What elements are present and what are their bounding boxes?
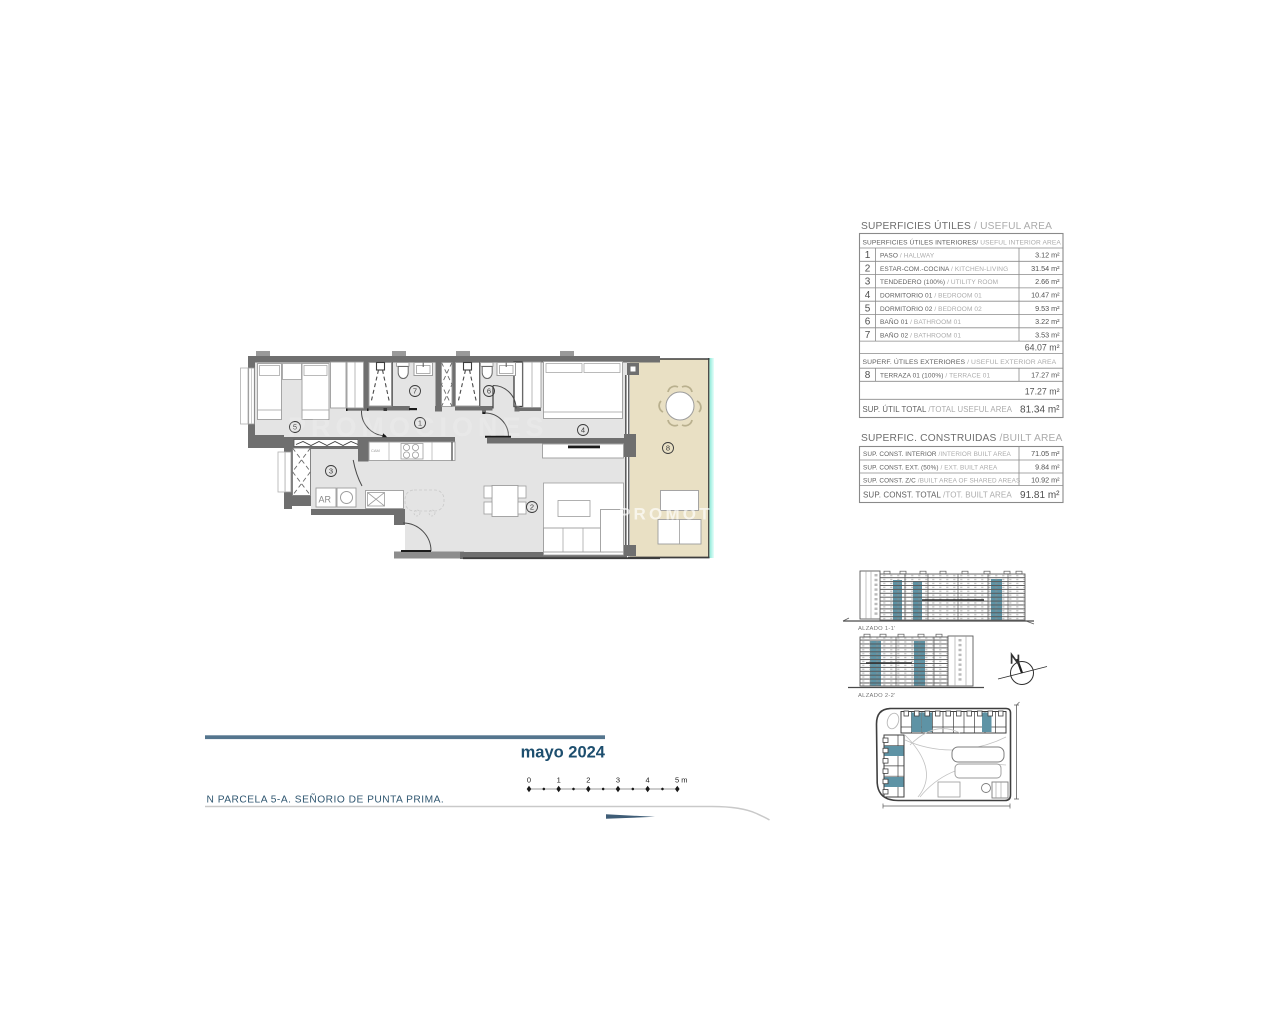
svg-text:DORMITORIO 02 / BEDROOM 02: DORMITORIO 02 / BEDROOM 02 bbox=[880, 306, 982, 313]
svg-text:64.07 m²: 64.07 m² bbox=[1025, 343, 1060, 353]
svg-text:81.34 m²: 81.34 m² bbox=[1020, 405, 1060, 416]
svg-text:ESTAR-COM.-COCINA / KITCHEN-LI: ESTAR-COM.-COCINA / KITCHEN-LIVING bbox=[880, 266, 1008, 273]
svg-text:PROMOCIONES: PROMOCIONES bbox=[288, 412, 549, 442]
svg-text:91.81 m²: 91.81 m² bbox=[1020, 490, 1060, 501]
svg-text:4: 4 bbox=[865, 290, 871, 301]
svg-text:2: 2 bbox=[586, 776, 590, 785]
svg-text:10.92 m²: 10.92 m² bbox=[1031, 476, 1060, 485]
svg-text:9.53 m²: 9.53 m² bbox=[1035, 304, 1060, 313]
svg-text:0: 0 bbox=[527, 776, 531, 785]
svg-text:71.05 m²: 71.05 m² bbox=[1031, 449, 1060, 458]
svg-text:SUPERF. ÚTILES EXTERIORES / US: SUPERF. ÚTILES EXTERIORES / USEFUL EXTER… bbox=[863, 357, 1057, 366]
svg-text:10.47 m²: 10.47 m² bbox=[1031, 291, 1060, 300]
svg-text:6: 6 bbox=[487, 387, 491, 396]
svg-text:3: 3 bbox=[329, 467, 333, 476]
svg-text:TENDEDERO (100%) / UTILITY ROO: TENDEDERO (100%) / UTILITY ROOM bbox=[880, 279, 998, 286]
svg-text:ALZADO 1-1': ALZADO 1-1' bbox=[858, 626, 896, 632]
svg-text:9.84 m²: 9.84 m² bbox=[1035, 463, 1060, 472]
svg-text:7: 7 bbox=[865, 330, 871, 341]
svg-text:SUPERFICIES ÚTILES INTERIORES/: SUPERFICIES ÚTILES INTERIORES/ USEFUL IN… bbox=[863, 238, 1062, 247]
svg-text:PROMOTIO: PROMOTIO bbox=[619, 505, 737, 524]
svg-text:31.54 m²: 31.54 m² bbox=[1031, 264, 1060, 273]
svg-text:3.22 m²: 3.22 m² bbox=[1035, 317, 1060, 326]
svg-text:3.53 m²: 3.53 m² bbox=[1035, 330, 1060, 339]
svg-text:SUPERFICIES ÚTILES / USEFUL AR: SUPERFICIES ÚTILES / USEFUL AREA bbox=[861, 219, 1052, 232]
svg-text:BAÑO 01 / BATHROOM 01: BAÑO 01 / BATHROOM 01 bbox=[880, 317, 961, 326]
svg-text:1: 1 bbox=[865, 250, 871, 261]
svg-text:2: 2 bbox=[530, 503, 534, 512]
svg-text:AR: AR bbox=[319, 495, 332, 505]
svg-text:5 m: 5 m bbox=[675, 776, 688, 785]
svg-text:TERRAZA 01 (100%) / TERRACE 01: TERRAZA 01 (100%) / TERRACE 01 bbox=[880, 372, 990, 379]
svg-text:N PARCELA 5-A. SEÑORIO DE PUNT: N PARCELA 5-A. SEÑORIO DE PUNTA PRIMA. bbox=[207, 793, 445, 806]
svg-text:2.66 m²: 2.66 m² bbox=[1035, 277, 1060, 286]
svg-text:1: 1 bbox=[557, 776, 561, 785]
svg-text:8: 8 bbox=[666, 444, 670, 453]
svg-text:2: 2 bbox=[865, 263, 871, 274]
svg-text:3: 3 bbox=[865, 277, 871, 288]
svg-text:5: 5 bbox=[865, 303, 871, 314]
svg-text:SUPERFIC. CONSTRUIDAS /BUILT A: SUPERFIC. CONSTRUIDAS /BUILT AREA bbox=[861, 433, 1063, 444]
svg-text:BAÑO 02 / BATHROOM 01: BAÑO 02 / BATHROOM 01 bbox=[880, 330, 961, 339]
svg-text:ALZADO 2-2': ALZADO 2-2' bbox=[858, 693, 896, 699]
svg-text:4: 4 bbox=[646, 776, 650, 785]
svg-text:SUP. CONST. TOTAL /TOT. BUILT: SUP. CONST. TOTAL /TOT. BUILT AREA bbox=[863, 491, 1012, 500]
svg-text:SUP. ÚTIL TOTAL /TOTAL USEFUL: SUP. ÚTIL TOTAL /TOTAL USEFUL AREA bbox=[863, 405, 1013, 414]
svg-text:PASO / HALLWAY: PASO / HALLWAY bbox=[880, 253, 935, 260]
svg-text:SUP. CONST. EXT. (50%) / EXT.: SUP. CONST. EXT. (50%) / EXT. BUILT AREA bbox=[863, 465, 998, 472]
svg-text:7: 7 bbox=[413, 387, 417, 396]
svg-text:3: 3 bbox=[616, 776, 620, 785]
svg-text:6: 6 bbox=[865, 317, 871, 328]
svg-text:mayo 2024: mayo 2024 bbox=[521, 744, 606, 762]
svg-text:CAM: CAM bbox=[371, 448, 380, 453]
svg-text:3.12 m²: 3.12 m² bbox=[1035, 251, 1060, 260]
svg-text:4: 4 bbox=[581, 426, 585, 435]
svg-text:SUP. CONST. INTERIOR /INTERIOR: SUP. CONST. INTERIOR /INTERIOR BUILT ARE… bbox=[863, 451, 1012, 458]
svg-text:SUP. CONST. Z/C /BUILT AREA OF: SUP. CONST. Z/C /BUILT AREA OF SHARED AR… bbox=[863, 478, 1020, 485]
svg-text:8: 8 bbox=[865, 370, 871, 381]
svg-text:17.27 m²: 17.27 m² bbox=[1031, 370, 1060, 379]
svg-text:17.27 m²: 17.27 m² bbox=[1025, 387, 1060, 397]
svg-text:DORMITORIO 01 / BEDROOM 01: DORMITORIO 01 / BEDROOM 01 bbox=[880, 293, 982, 300]
